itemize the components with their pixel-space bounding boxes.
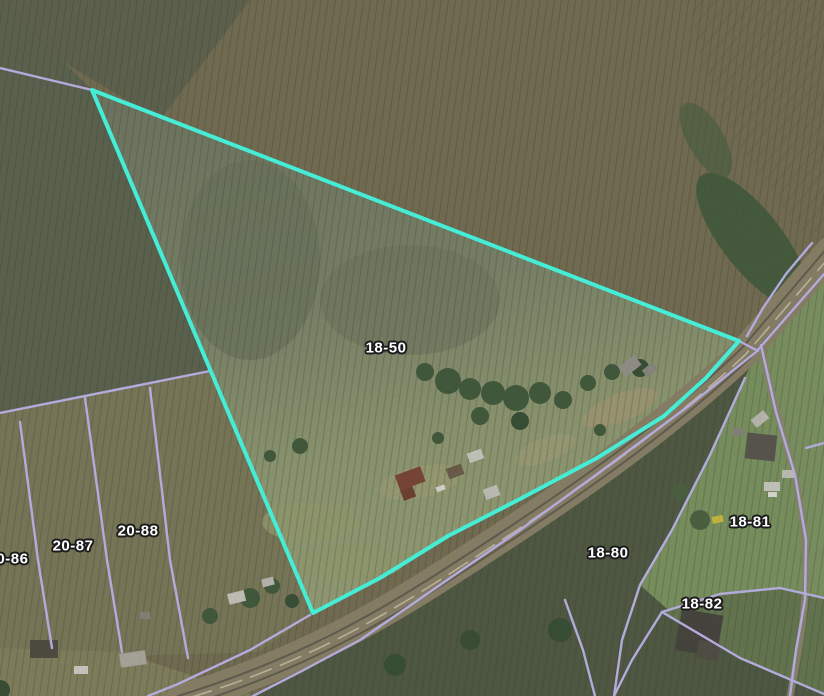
parcel-label-18-50[interactable]: 18-50 [366, 340, 407, 357]
map-canvas[interactable]: 18-50 20-86 20-87 20-88 18-80 18-81 18-8… [0, 0, 824, 696]
aerial-imagery [0, 0, 824, 696]
parcel-label-20-86[interactable]: 20-86 [0, 551, 28, 568]
parcel-label-20-88[interactable]: 20-88 [118, 523, 159, 540]
parcel-label-18-80[interactable]: 18-80 [588, 545, 629, 562]
parcel-label-18-82[interactable]: 18-82 [682, 596, 723, 613]
parcel-label-18-81[interactable]: 18-81 [730, 514, 771, 531]
parcel-label-20-87[interactable]: 20-87 [53, 538, 94, 555]
